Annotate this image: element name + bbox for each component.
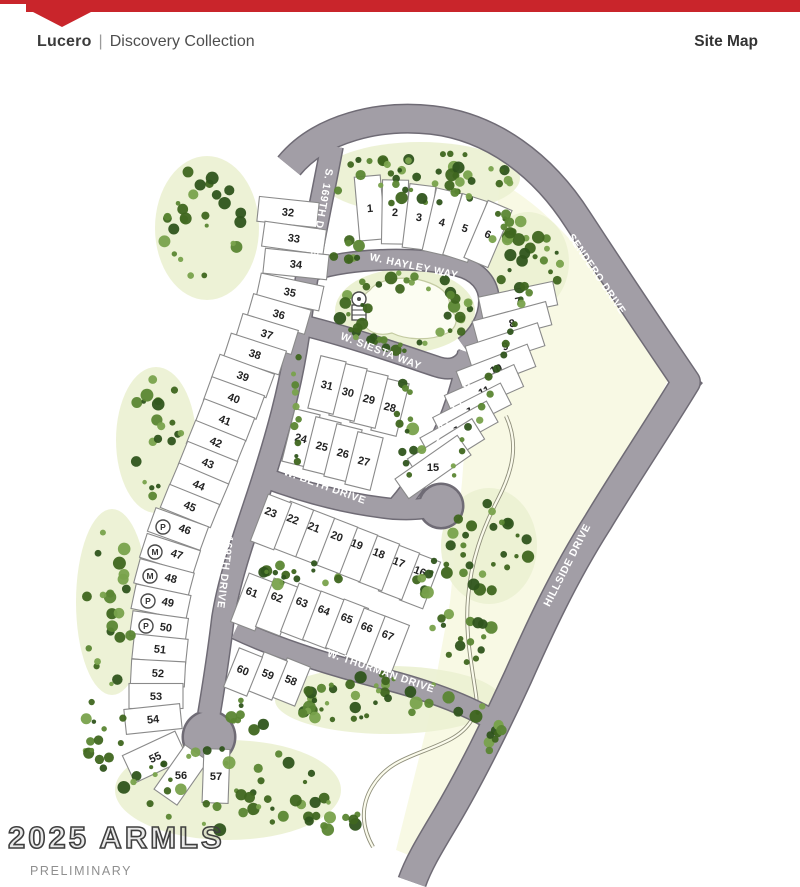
svg-text:1: 1 (367, 203, 374, 215)
svg-text:P: P (145, 596, 151, 606)
svg-text:15: 15 (427, 462, 439, 474)
svg-text:57: 57 (210, 771, 222, 783)
page: Lucero | Discovery Collection Site Map 1… (0, 0, 800, 887)
preliminary-status: PRELIMINARY (30, 864, 132, 878)
svg-text:32: 32 (281, 206, 294, 219)
svg-text:49: 49 (161, 596, 175, 610)
svg-text:52: 52 (152, 668, 165, 681)
svg-text:33: 33 (287, 232, 301, 246)
site-map: 1234567891011121314151617181920212223242… (0, 0, 800, 887)
armls-watermark: 2025 ARMLS (8, 820, 225, 856)
site-map-drawing: 1234567891011121314151617181920212223242… (0, 0, 800, 887)
svg-text:P: P (160, 522, 166, 532)
svg-text:54: 54 (146, 713, 160, 726)
svg-text:2: 2 (392, 207, 398, 219)
svg-text:51: 51 (153, 643, 166, 656)
svg-text:35: 35 (283, 286, 297, 300)
svg-text:34: 34 (289, 258, 303, 271)
svg-text:50: 50 (159, 621, 173, 635)
svg-text:M: M (151, 547, 158, 557)
svg-text:P: P (143, 621, 149, 631)
svg-text:56: 56 (175, 770, 187, 782)
svg-text:53: 53 (150, 691, 162, 703)
svg-text:M: M (146, 571, 153, 581)
